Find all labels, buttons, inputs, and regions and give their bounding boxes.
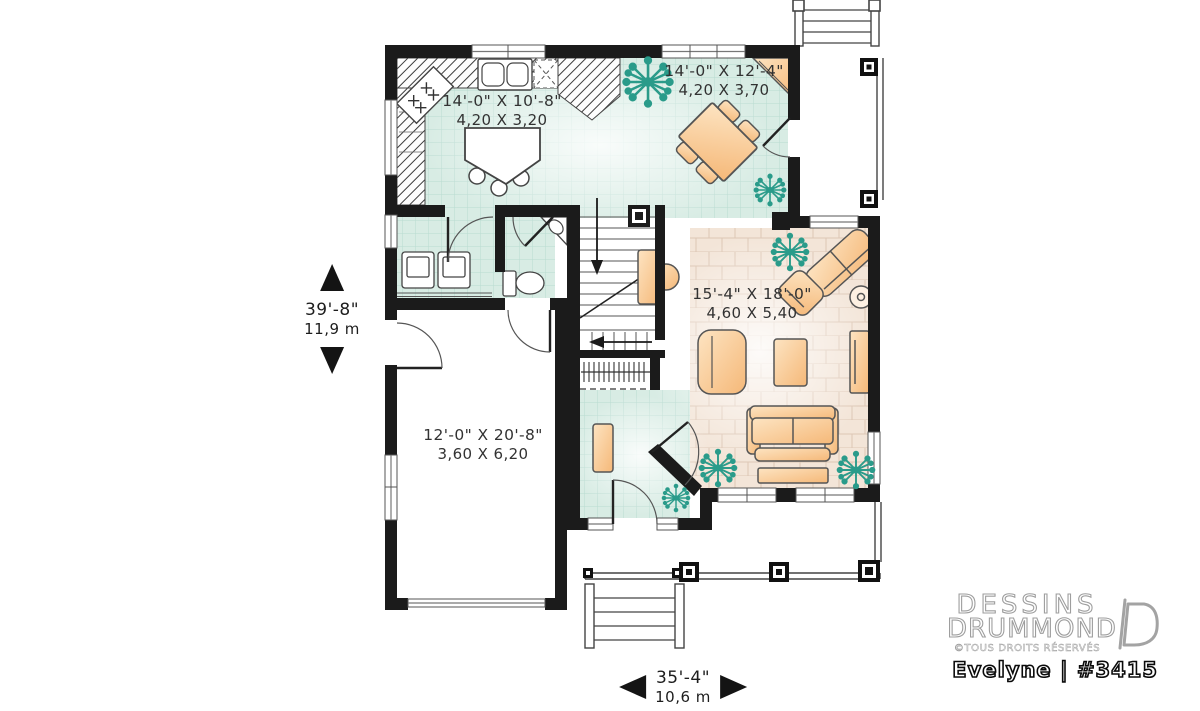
foyer-bench [593,424,613,472]
laundry-window [385,215,397,248]
arrow-right-icon [720,675,747,699]
garage-dims-metric: 3,60 X 6,20 [423,445,543,464]
sofa-console [758,468,828,483]
floorplan-page: 14'-0" X 10'-8" 4,20 X 3,20 14'-0" X 12'… [0,0,1200,711]
dining-dims-metric: 4,20 X 3,70 [664,81,784,100]
width-metric: 10,6 m [655,688,711,706]
newel-post [628,205,650,227]
entry-closet [580,362,650,389]
porch-post [769,562,789,582]
arrow-left-icon [619,675,646,699]
stairs-left-arrow-icon [589,336,652,348]
living-dims-imperial: 15'-4" X 18'-0" [692,285,812,304]
dining-label: 14'-0" X 12'-4" 4,20 X 3,70 [664,62,784,100]
living-dims-metric: 4,60 X 5,40 [692,304,812,323]
living-south-window-1 [718,488,776,502]
copyright-text: ©TOUS DROITS RÉSERVÉS [947,643,1107,654]
plan-name: Evelyne | #3415 [947,658,1160,682]
front-door-sidelight-right [657,518,678,530]
coffee-table [774,339,807,386]
garage-dims-imperial: 12'-0" X 20'-8" [423,426,543,445]
living-label: 15'-4" X 18'-0" 4,60 X 5,40 [692,285,812,323]
kitchen-window [472,45,545,58]
front-door-sidelight-left [588,518,613,530]
garage-service-door [397,323,442,368]
dishwasher [534,60,558,88]
kitchen-dims-imperial: 14'-0" X 10'-8" [442,92,562,111]
garage-door [408,599,545,607]
living-north-window [810,216,858,228]
drummond-d-logo-icon [1114,597,1160,651]
porch-steps [585,584,684,648]
brand-name-line2: DRUMMOND [947,617,1107,641]
garage-hall-door [508,310,550,352]
overall-depth-dimension: 39'-8" 11,9 m [304,264,360,374]
plant-icon [662,484,689,511]
side-porch-stairs [793,0,880,46]
plant-icon [772,234,809,271]
tv-cabinet [850,331,869,393]
sofa [747,406,838,483]
porch-post [860,190,878,208]
width-imperial: 35'-4" [655,668,711,688]
chaise-chair [698,330,746,394]
branding-block: DESSINS DRUMMOND ©TOUS DROITS RÉSERVÉS E… [947,594,1160,682]
front-porch [585,502,881,648]
side-porch [793,0,883,200]
kitchen-dims-metric: 4,20 X 3,20 [442,111,562,130]
arrow-up-icon [320,264,344,291]
plant-icon [754,174,785,205]
toilet [503,271,544,296]
dining-dims-imperial: 14'-0" X 12'-4" [664,62,784,81]
kitchen-label: 14'-0" X 10'-8" 4,20 X 3,20 [442,92,562,130]
kitchen-side-window [385,100,397,175]
plant-icon [700,450,737,487]
garage-window [385,455,397,520]
porch-post [858,560,880,582]
porch-post [860,58,878,76]
overall-width-dimension: 35'-4" 10,6 m [619,668,747,706]
kitchen-sink [478,59,532,90]
garage-label: 12'-0" X 20'-8" 3,60 X 6,20 [423,426,543,464]
living-south-window-2 [796,488,854,502]
arrow-down-icon [320,347,344,374]
depth-metric: 11,9 m [304,320,360,338]
plant-icon [838,452,875,489]
depth-imperial: 39'-8" [304,300,360,320]
dining-window [662,45,745,58]
